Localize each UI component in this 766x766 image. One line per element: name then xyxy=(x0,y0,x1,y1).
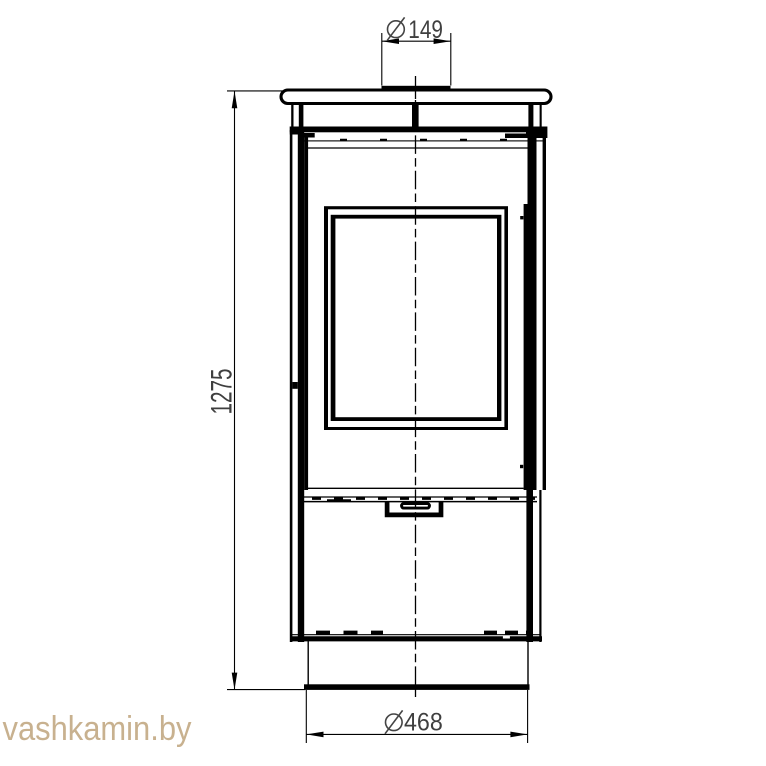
svg-text:1275: 1275 xyxy=(206,368,239,414)
svg-text:149: 149 xyxy=(408,15,443,43)
svg-text:468: 468 xyxy=(404,709,443,737)
svg-text:vashkamin.by: vashkamin.by xyxy=(3,710,193,748)
